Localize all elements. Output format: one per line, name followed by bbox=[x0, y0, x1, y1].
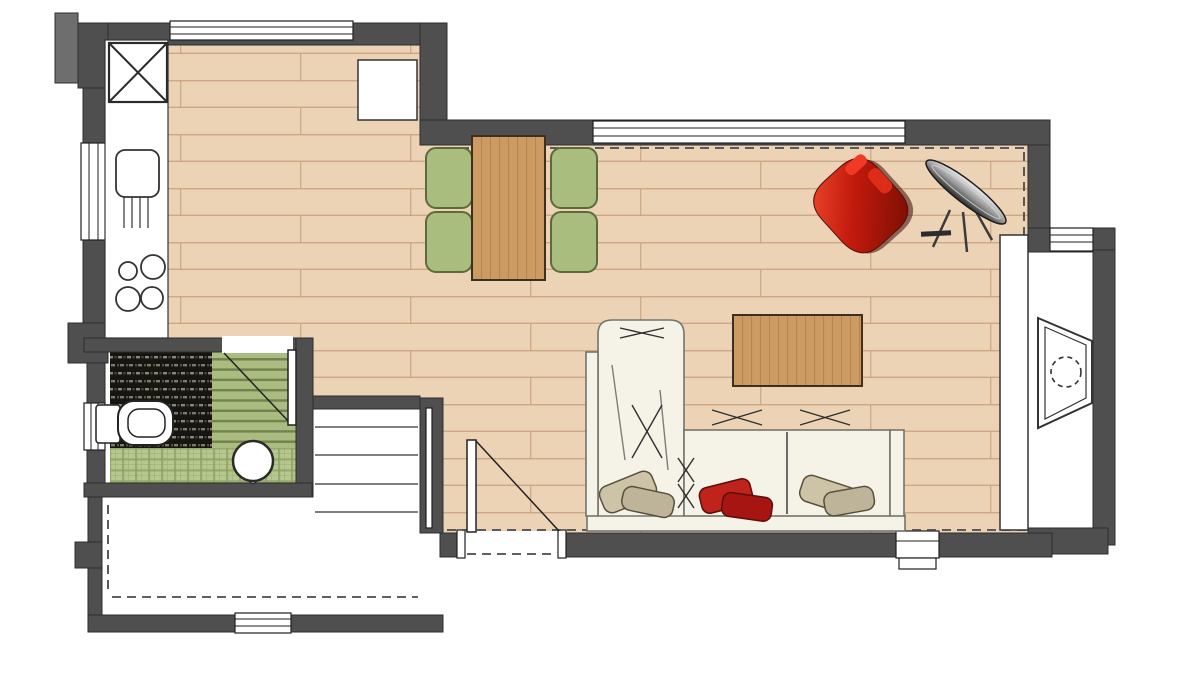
window-kitchen-top bbox=[170, 21, 353, 40]
dining-chair bbox=[551, 148, 597, 208]
dining-chair bbox=[551, 212, 597, 272]
wall-right-outer bbox=[1093, 250, 1115, 545]
shaft-niche bbox=[358, 60, 417, 120]
porch-floor bbox=[102, 497, 443, 617]
tall-unit-x bbox=[109, 43, 167, 102]
window-kitchen-left bbox=[81, 143, 107, 240]
kitchen bbox=[105, 40, 168, 338]
floorplan-stage bbox=[0, 0, 1200, 676]
dining-chair bbox=[426, 148, 472, 208]
wall-right-upper bbox=[1028, 145, 1050, 230]
dining-chair bbox=[426, 212, 472, 272]
wall-pier-bottomleft bbox=[75, 542, 102, 568]
dining-set bbox=[426, 136, 597, 280]
floorplan-drawing bbox=[0, 0, 1200, 676]
wall-pier-topleft bbox=[55, 13, 78, 83]
tall-cabinet bbox=[1000, 235, 1028, 530]
bathroom-door-opening bbox=[222, 336, 293, 353]
sofa-armrest-right bbox=[890, 430, 904, 516]
wall-bath-bottom bbox=[84, 483, 312, 497]
wood-floor-kitchen bbox=[168, 130, 443, 338]
coffee-table bbox=[733, 315, 862, 386]
wall-stairs-top bbox=[313, 396, 420, 409]
wall-bath-left-a bbox=[87, 363, 105, 405]
wall-left-top bbox=[78, 23, 108, 88]
stub-inner-panel bbox=[426, 408, 432, 528]
dining-table bbox=[472, 136, 545, 280]
window-living-bottom bbox=[896, 531, 939, 569]
window-niche-top bbox=[1050, 228, 1093, 251]
window-living-top bbox=[593, 121, 905, 143]
wall-left-b bbox=[83, 240, 107, 323]
wall-left-a bbox=[83, 88, 107, 143]
window-porch-bottom bbox=[235, 613, 291, 633]
wood-floor-hall-strip bbox=[313, 338, 443, 400]
wall-bath-right bbox=[296, 338, 313, 497]
sofa-armrest-left bbox=[586, 352, 598, 516]
toilet bbox=[96, 401, 173, 445]
